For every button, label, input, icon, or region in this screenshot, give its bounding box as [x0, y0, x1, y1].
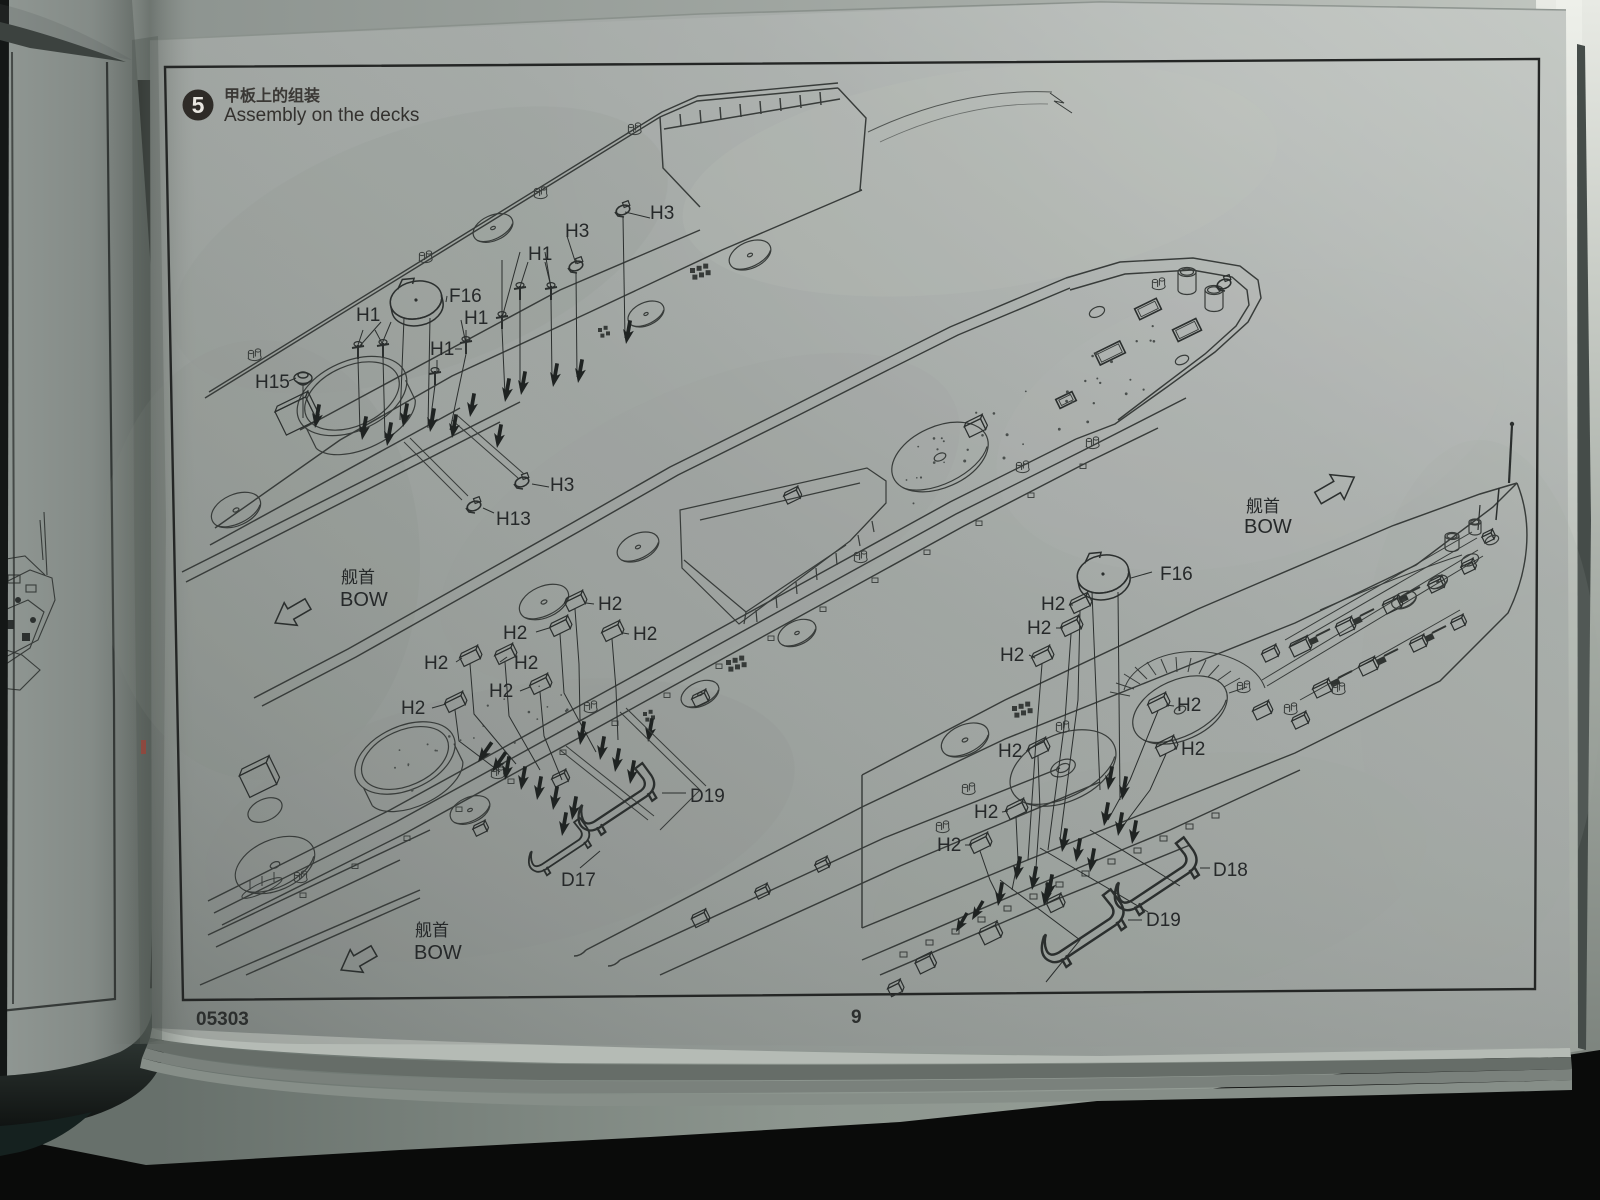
svg-text:H3: H3 — [550, 475, 574, 496]
svg-text:H2: H2 — [514, 653, 538, 674]
svg-text:H13: H13 — [496, 509, 531, 530]
svg-text:H2: H2 — [598, 594, 622, 615]
svg-text:舰首: 舰首 — [415, 921, 449, 940]
svg-text:BOW: BOW — [1244, 516, 1292, 538]
svg-text:H3: H3 — [565, 221, 589, 242]
svg-text:D19: D19 — [1146, 910, 1181, 931]
svg-text:H2: H2 — [424, 653, 448, 674]
svg-text:5: 5 — [192, 92, 205, 118]
svg-text:H2: H2 — [503, 623, 527, 644]
svg-text:H1: H1 — [464, 308, 488, 329]
svg-text:Assembly on the decks: Assembly on the decks — [224, 105, 419, 126]
svg-text:H2: H2 — [401, 698, 425, 719]
svg-text:H2: H2 — [1041, 594, 1065, 615]
svg-text:H2: H2 — [1027, 618, 1051, 639]
svg-text:H2: H2 — [1181, 739, 1205, 760]
svg-text:H2: H2 — [1177, 695, 1201, 716]
svg-text:舰首: 舰首 — [1246, 497, 1280, 516]
svg-text:D18: D18 — [1213, 860, 1248, 881]
svg-text:甲板上的组装: 甲板上的组装 — [224, 86, 320, 105]
svg-text:H2: H2 — [489, 681, 513, 702]
svg-text:H2: H2 — [998, 741, 1022, 762]
svg-text:H1: H1 — [528, 244, 552, 265]
svg-text:H1: H1 — [430, 339, 454, 360]
svg-text:H2: H2 — [1000, 645, 1024, 666]
svg-text:H2: H2 — [937, 835, 961, 856]
svg-text:H2: H2 — [974, 802, 998, 823]
svg-text:9: 9 — [851, 1007, 862, 1028]
svg-text:D17: D17 — [561, 870, 596, 891]
svg-text:F16: F16 — [1160, 564, 1193, 585]
svg-text:H2: H2 — [633, 624, 657, 645]
svg-text:H3: H3 — [650, 203, 674, 224]
svg-text:BOW: BOW — [414, 942, 462, 964]
svg-text:舰首: 舰首 — [341, 568, 375, 587]
svg-text:F16: F16 — [449, 286, 482, 307]
svg-text:05303: 05303 — [196, 1009, 249, 1030]
svg-text:H15: H15 — [255, 372, 290, 393]
svg-text:BOW: BOW — [340, 589, 388, 611]
svg-text:H1: H1 — [356, 305, 380, 326]
svg-text:D19: D19 — [690, 786, 725, 807]
